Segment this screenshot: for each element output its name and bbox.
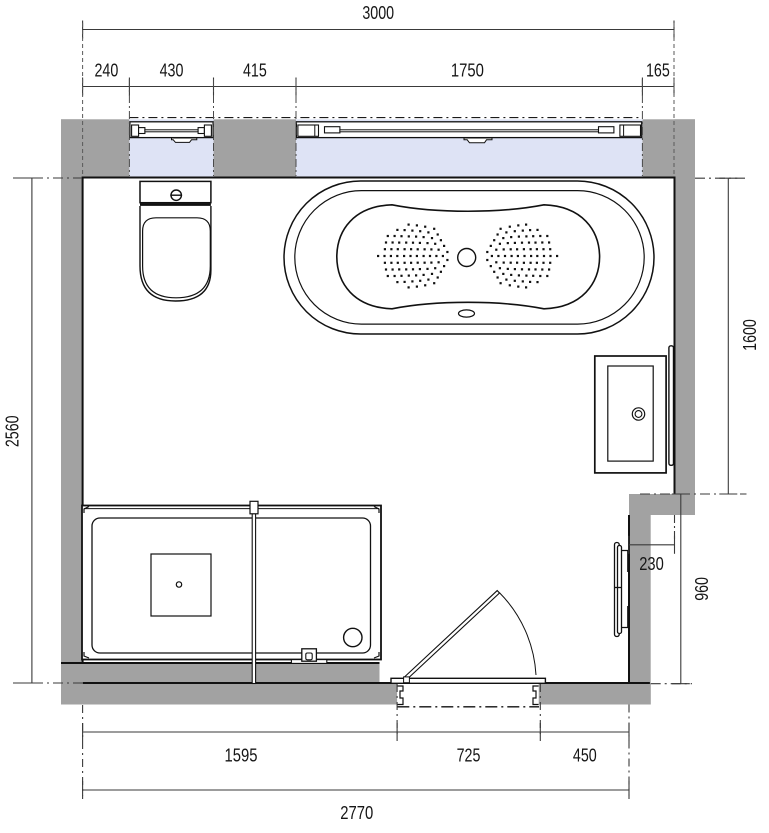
svg-text:1600: 1600 [739, 319, 760, 351]
svg-text:430: 430 [160, 60, 184, 81]
svg-text:725: 725 [457, 745, 481, 766]
svg-text:240: 240 [95, 60, 119, 81]
svg-text:1750: 1750 [451, 60, 484, 81]
svg-text:230: 230 [639, 553, 664, 574]
svg-text:3000: 3000 [362, 2, 394, 23]
svg-text:2770: 2770 [340, 802, 373, 823]
svg-text:450: 450 [573, 745, 597, 766]
svg-text:165: 165 [646, 60, 670, 81]
svg-text:1595: 1595 [225, 745, 258, 766]
svg-text:2560: 2560 [2, 415, 23, 447]
svg-text:415: 415 [243, 60, 267, 81]
svg-text:960: 960 [691, 577, 712, 601]
